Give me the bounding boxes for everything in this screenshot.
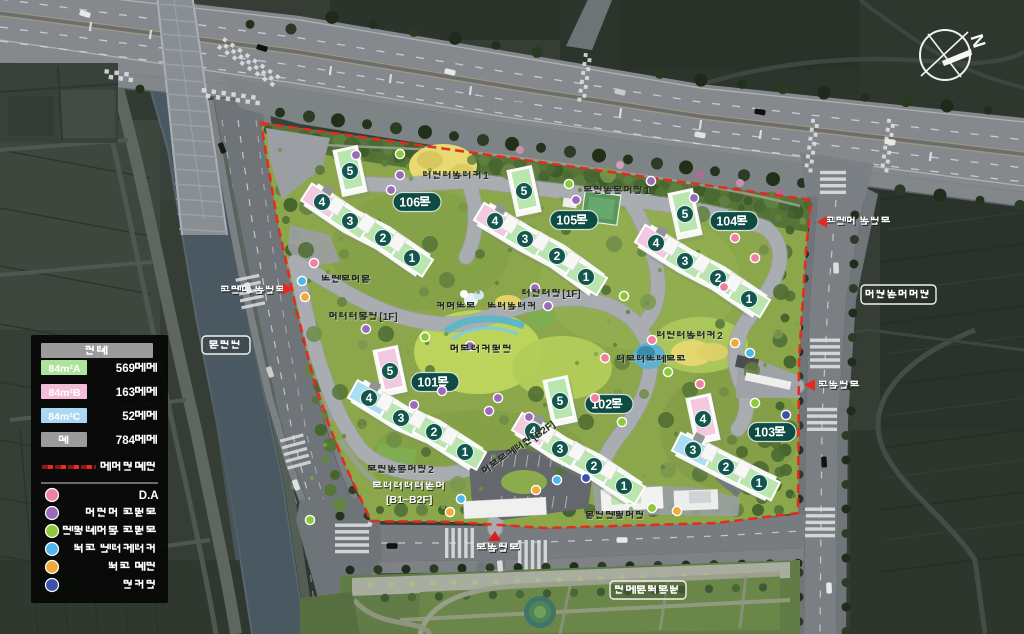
svg-text:2: 2 — [717, 331, 723, 342]
svg-text:2: 2 — [380, 231, 387, 245]
svg-text:2: 2 — [591, 459, 598, 473]
svg-text:4: 4 — [319, 195, 326, 209]
svg-text:105: 105 — [556, 213, 577, 227]
svg-text:[1F]: [1F] — [379, 312, 397, 323]
svg-text:1: 1 — [583, 270, 590, 284]
svg-text:5: 5 — [347, 164, 354, 178]
svg-text:1: 1 — [621, 479, 628, 493]
svg-text:3: 3 — [690, 443, 697, 457]
svg-text:5: 5 — [387, 364, 394, 378]
svg-text:2: 2 — [431, 425, 438, 439]
svg-text:569: 569 — [116, 363, 135, 375]
svg-text:4: 4 — [653, 236, 660, 250]
svg-text:784: 784 — [116, 435, 136, 447]
svg-text:2: 2 — [723, 460, 730, 474]
svg-text:1: 1 — [746, 292, 753, 306]
svg-text:4: 4 — [366, 391, 373, 405]
svg-text:[B1~B2F]: [B1~B2F] — [386, 494, 432, 506]
svg-text:1: 1 — [483, 171, 489, 182]
svg-text:3: 3 — [522, 232, 529, 246]
svg-text:2: 2 — [428, 465, 434, 476]
svg-text:5: 5 — [521, 184, 528, 198]
svg-text:103: 103 — [754, 425, 775, 439]
svg-text:4: 4 — [700, 412, 707, 426]
svg-text:D.A: D.A — [139, 490, 159, 502]
svg-text:1: 1 — [462, 445, 469, 459]
svg-text:5: 5 — [682, 207, 689, 221]
svg-text:4: 4 — [492, 214, 499, 228]
svg-text:84m²A: 84m²A — [49, 363, 82, 375]
svg-text:1: 1 — [756, 476, 763, 490]
svg-text:3: 3 — [398, 411, 405, 425]
svg-text:1: 1 — [409, 251, 416, 265]
svg-text:[1F]: [1F] — [562, 289, 580, 300]
svg-text:163: 163 — [116, 387, 135, 399]
svg-text:84m²C: 84m²C — [48, 411, 81, 423]
svg-text:104: 104 — [716, 214, 737, 228]
svg-text:5: 5 — [557, 394, 564, 408]
svg-text:2: 2 — [554, 249, 561, 263]
svg-text:101: 101 — [417, 375, 438, 389]
svg-text:1: 1 — [644, 186, 650, 197]
svg-text:3: 3 — [682, 254, 689, 268]
svg-text:3: 3 — [557, 442, 564, 456]
svg-text:52: 52 — [122, 411, 135, 423]
svg-text:84m²B: 84m²B — [49, 387, 82, 399]
svg-text:106: 106 — [399, 195, 420, 209]
svg-text:3: 3 — [347, 214, 354, 228]
